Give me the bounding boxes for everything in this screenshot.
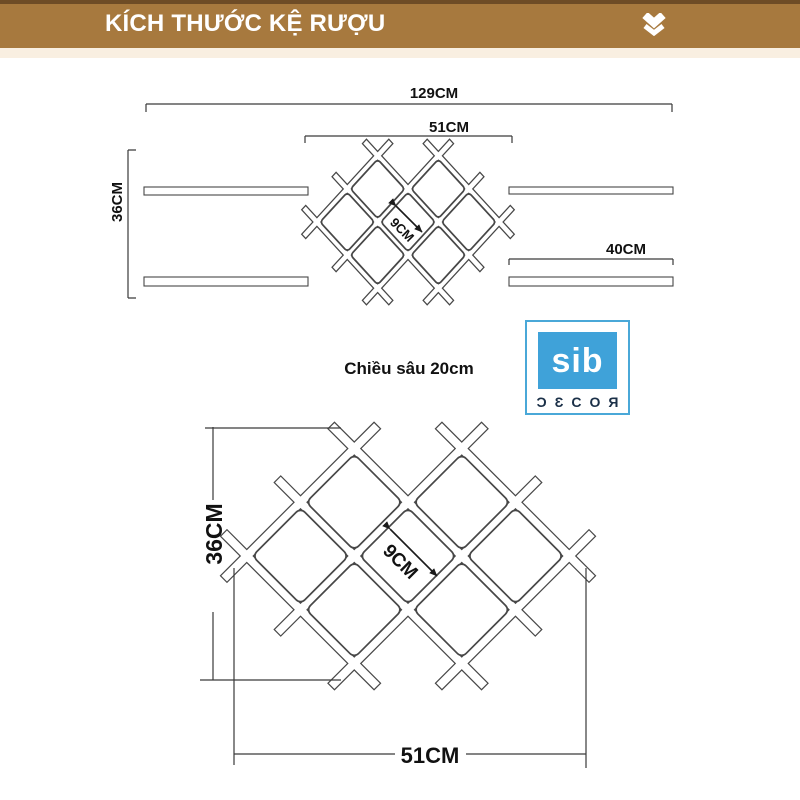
dimension-overall-width: 129CM [146, 85, 672, 112]
page: 129CM 51CM 36CM 40CM 9CM Chiều s [0, 0, 800, 800]
dim-label-36cm-top: 36CM [109, 182, 126, 222]
depth-note: Chiều sâu 20cm [344, 359, 473, 378]
shelf-board-left-bottom [144, 277, 308, 286]
header-bar: KÍCH THƯỚC KỆ RƯỢU [0, 0, 800, 48]
shelf-board-right-top [509, 187, 673, 194]
brand-logo: sib ƆƐCOЯ [525, 320, 630, 415]
dimension-rack-width-top: 51CM [305, 119, 512, 143]
dim-label-129cm: 129CM [410, 85, 458, 102]
dimension-shelf-width: 40CM [509, 241, 673, 265]
dim-label-36cm-front: 36CM [201, 503, 227, 564]
logo-decor-text: ƆƐCOЯ [527, 394, 628, 410]
chevron-down-icon[interactable] [642, 13, 666, 36]
dim-label-51cm-top: 51CM [429, 119, 469, 136]
logo-blue-square: sib [538, 332, 617, 389]
header-top-line [0, 0, 800, 4]
dimension-drawing: 129CM 51CM 36CM 40CM 9CM Chiều s [0, 0, 800, 800]
header-bottom-strip [0, 48, 800, 58]
shelf-board-right-bottom [509, 277, 673, 286]
dim-label-51cm-front: 51CM [401, 743, 460, 768]
dim-label-40cm: 40CM [606, 241, 646, 258]
shelf-board-left-top [144, 187, 308, 195]
dimension-height-top: 36CM [109, 150, 136, 298]
page-title: KÍCH THƯỚC KỆ RƯỢU [105, 10, 385, 38]
wine-rack-lattice-top [291, 95, 524, 349]
logo-name-text: sib [551, 344, 603, 378]
